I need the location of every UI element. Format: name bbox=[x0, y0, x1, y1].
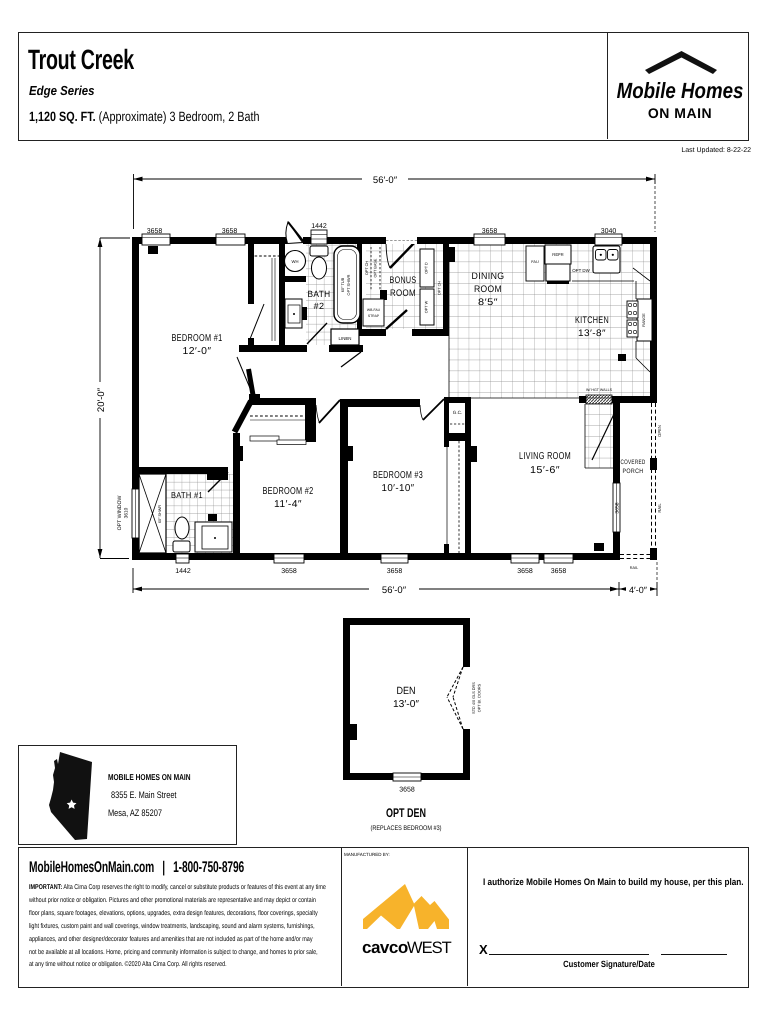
svg-text:WH: WH bbox=[292, 259, 299, 264]
svg-text:BATH: BATH bbox=[308, 289, 331, 299]
svg-text:3658: 3658 bbox=[222, 228, 238, 235]
svg-text:3658: 3658 bbox=[399, 787, 415, 794]
svg-text:LINEN: LINEN bbox=[339, 336, 352, 341]
svg-text:1442: 1442 bbox=[175, 568, 191, 575]
svg-text:STD 4/0 GLS DRS: STD 4/0 GLS DRS bbox=[472, 682, 476, 714]
svg-text:60″ TUB: 60″ TUB bbox=[340, 277, 345, 292]
svg-text:OPT DW: OPT DW bbox=[572, 268, 590, 273]
svg-text:OPT WINDOW: OPT WINDOW bbox=[117, 496, 123, 531]
svg-text:OPT DEN: OPT DEN bbox=[386, 806, 426, 820]
svg-text:STRAP: STRAP bbox=[368, 314, 380, 318]
svg-text:56′-0″: 56′-0″ bbox=[382, 585, 407, 596]
svg-text:BONUS: BONUS bbox=[390, 275, 417, 286]
svg-text:KITCHEN: KITCHEN bbox=[575, 315, 609, 326]
svg-text:DEN: DEN bbox=[397, 685, 416, 697]
svg-text:W/ HGT WALLS: W/ HGT WALLS bbox=[586, 388, 613, 392]
svg-text:56′-0″: 56′-0″ bbox=[373, 175, 398, 186]
svg-text:WEST: WEST bbox=[407, 939, 452, 957]
svg-text:OPT BI. DOORS: OPT BI. DOORS bbox=[478, 683, 482, 712]
svg-text:15′-6″: 15′-6″ bbox=[530, 465, 560, 476]
svg-text:WB-FAU: WB-FAU bbox=[367, 308, 381, 312]
svg-text:13′-8″: 13′-8″ bbox=[578, 328, 606, 339]
svg-text:OPT CH: OPT CH bbox=[365, 261, 369, 276]
svg-text:1442: 1442 bbox=[311, 223, 327, 230]
svg-text:13′-0″: 13′-0″ bbox=[393, 699, 419, 710]
svg-text:3658: 3658 bbox=[147, 228, 163, 235]
svg-text:ROOM: ROOM bbox=[390, 288, 416, 299]
svg-text:RAIL: RAIL bbox=[630, 566, 638, 570]
svg-text:12′-0″: 12′-0″ bbox=[183, 346, 212, 357]
svg-text:DINING: DINING bbox=[472, 271, 505, 282]
svg-text:RANGE: RANGE bbox=[642, 313, 646, 327]
svg-text:3040: 3040 bbox=[601, 228, 617, 235]
svg-text:(REPLACES BEDROOM #3): (REPLACES BEDROOM #3) bbox=[371, 825, 442, 832]
svg-text:cavco: cavco bbox=[362, 938, 408, 957]
svg-text:OPT CH: OPT CH bbox=[438, 281, 442, 296]
svg-text:3658: 3658 bbox=[551, 568, 567, 575]
svg-text:FAU: FAU bbox=[531, 260, 539, 264]
svg-text:PORCH: PORCH bbox=[623, 468, 644, 475]
svg-text:OPEN: OPEN bbox=[657, 425, 662, 437]
svg-text:OPT SHWR: OPT SHWR bbox=[346, 274, 351, 295]
svg-text:G.C.: G.C. bbox=[453, 410, 462, 415]
svg-text:3610: 3610 bbox=[124, 507, 130, 518]
svg-text:BATH #1: BATH #1 bbox=[171, 490, 203, 500]
svg-text:3658: 3658 bbox=[615, 502, 621, 513]
svg-text:BEDROOM #1: BEDROOM #1 bbox=[172, 333, 223, 344]
svg-text:11′-4″: 11′-4″ bbox=[274, 499, 302, 510]
svg-text:ROOM: ROOM bbox=[474, 284, 502, 295]
svg-text:#2: #2 bbox=[314, 301, 325, 311]
svg-text:LIVING ROOM: LIVING ROOM bbox=[519, 451, 571, 462]
svg-text:8′5″: 8′5″ bbox=[478, 297, 498, 308]
svg-text:OPT D: OPT D bbox=[425, 262, 429, 274]
svg-text:OPT BASE: OPT BASE bbox=[374, 258, 378, 277]
svg-text:3658: 3658 bbox=[281, 568, 297, 575]
svg-text:OPT W: OPT W bbox=[425, 300, 429, 313]
svg-text:10′-10″: 10′-10″ bbox=[382, 483, 415, 494]
svg-text:3658: 3658 bbox=[517, 568, 533, 575]
svg-text:BEDROOM #2: BEDROOM #2 bbox=[263, 486, 314, 497]
svg-text:REFR: REFR bbox=[552, 252, 563, 257]
svg-text:COVERED: COVERED bbox=[621, 459, 646, 466]
svg-text:RAIL: RAIL bbox=[657, 503, 662, 513]
svg-text:BEDROOM #3: BEDROOM #3 bbox=[373, 470, 423, 481]
svg-text:60″ SHWR: 60″ SHWR bbox=[158, 505, 162, 523]
svg-text:3658: 3658 bbox=[482, 228, 498, 235]
svg-text:3658: 3658 bbox=[387, 568, 403, 575]
svg-text:20′-0″: 20′-0″ bbox=[96, 387, 107, 412]
svg-text:4′-0″: 4′-0″ bbox=[629, 585, 648, 595]
